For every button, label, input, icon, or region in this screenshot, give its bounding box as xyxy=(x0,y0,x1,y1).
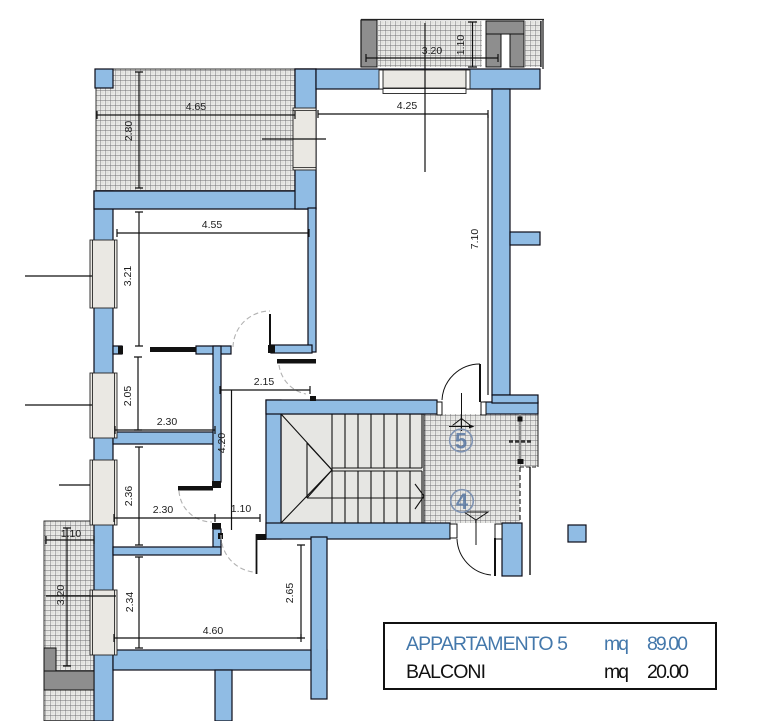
svg-text:89.00: 89.00 xyxy=(647,633,688,655)
svg-text:4.65: 4.65 xyxy=(186,101,207,113)
svg-text:2.34: 2.34 xyxy=(124,592,136,613)
svg-text:1.10: 1.10 xyxy=(455,35,467,56)
svg-text:3.20: 3.20 xyxy=(55,585,67,606)
svg-text:2.65: 2.65 xyxy=(284,583,296,604)
svg-text:2.36: 2.36 xyxy=(123,486,135,507)
svg-text:BALCONI: BALCONI xyxy=(406,661,486,683)
svg-text:mq: mq xyxy=(604,633,629,655)
svg-text:4.60: 4.60 xyxy=(203,625,224,637)
svg-text:mq: mq xyxy=(604,661,629,683)
svg-text:2.30: 2.30 xyxy=(157,416,178,428)
svg-text:5: 5 xyxy=(455,429,467,454)
svg-text:7.10: 7.10 xyxy=(469,229,481,250)
svg-text:1.10: 1.10 xyxy=(61,528,82,540)
svg-text:3.21: 3.21 xyxy=(122,266,134,287)
svg-text:4.55: 4.55 xyxy=(202,219,223,231)
svg-text:2.05: 2.05 xyxy=(122,386,134,407)
svg-text:2.80: 2.80 xyxy=(123,121,135,142)
svg-text:3.20: 3.20 xyxy=(422,45,443,57)
svg-text:2.30: 2.30 xyxy=(153,504,174,516)
svg-text:4.25: 4.25 xyxy=(397,100,418,112)
svg-text:2.15: 2.15 xyxy=(254,376,275,388)
svg-text:1.10: 1.10 xyxy=(231,503,252,515)
svg-text:4: 4 xyxy=(456,489,469,514)
svg-text:4.20: 4.20 xyxy=(216,433,228,454)
svg-text:APPARTAMENTO 5: APPARTAMENTO 5 xyxy=(406,633,568,655)
svg-text:20.00: 20.00 xyxy=(647,661,689,683)
